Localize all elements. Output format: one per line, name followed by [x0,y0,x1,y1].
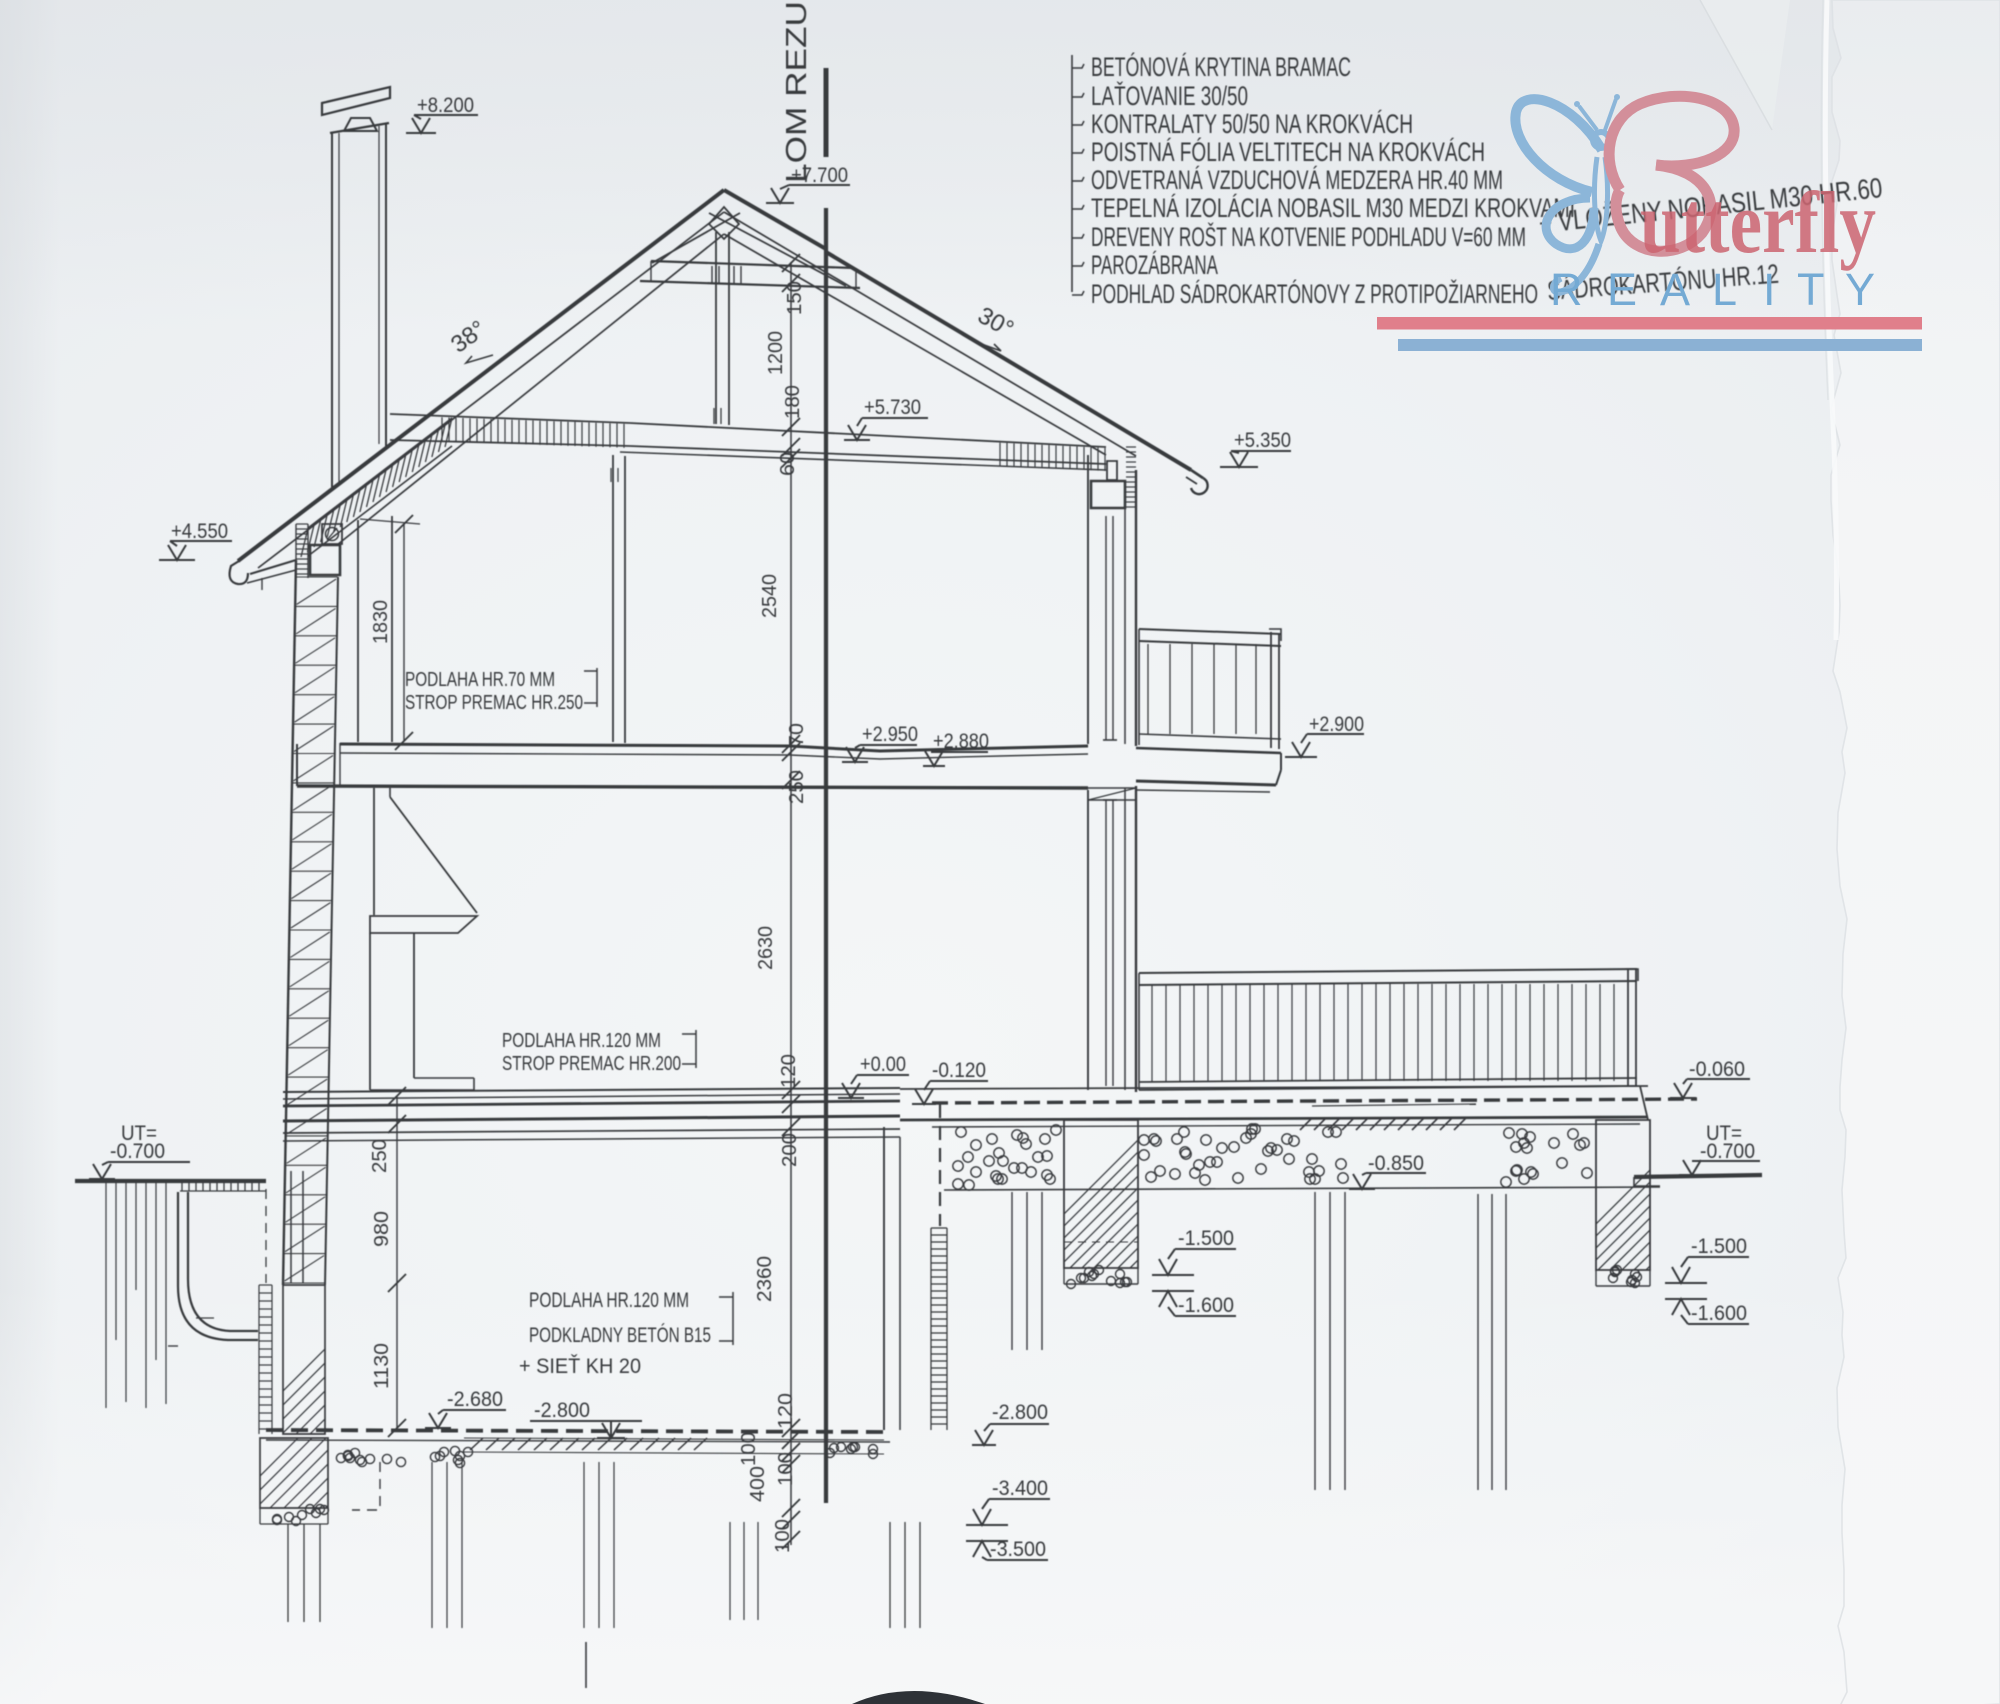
svg-text:980: 980 [371,1211,393,1247]
svg-text:-2.800: -2.800 [992,1401,1048,1424]
svg-text:-3.400: -3.400 [992,1477,1048,1500]
svg-text:2630: 2630 [755,926,777,970]
svg-text:1830: 1830 [370,600,392,644]
svg-text:utterfly: utterfly [1640,175,1876,272]
svg-text:E: E [1607,264,1637,315]
svg-text:+0.00: +0.00 [860,1053,906,1076]
svg-text:-0.700: -0.700 [1700,1140,1755,1163]
svg-text:TEPELNÁ IZOLÁCIA NOBASIL M30 M: TEPELNÁ IZOLÁCIA NOBASIL M30 MEDZI KROKV… [1091,193,1575,223]
svg-text:400: 400 [747,1466,769,1502]
svg-text:-2.680: -2.680 [447,1388,503,1411]
svg-text:250: 250 [786,770,808,804]
svg-text:60: 60 [777,452,799,476]
svg-text:R: R [1550,264,1583,315]
svg-text:DREVENY ROŠT NA KOTVENIE PODHL: DREVENY ROŠT NA KOTVENIE PODHLADU V=60 M… [1091,221,1526,252]
svg-text:BETÓNOVÁ KRYTINA BRAMAC: BETÓNOVÁ KRYTINA BRAMAC [1091,51,1351,82]
svg-text:-1.600: -1.600 [1691,1302,1747,1325]
svg-text:+2.950: +2.950 [862,723,918,746]
svg-text:-0.060: -0.060 [1689,1058,1745,1081]
svg-text:LAŤOVANIE 30/50: LAŤOVANIE 30/50 [1091,80,1248,111]
svg-text:ODVETRANÁ VZDUCHOVÁ MEDZERA HR: ODVETRANÁ VZDUCHOVÁ MEDZERA HR.40 MM [1091,165,1503,195]
svg-text:T: T [1797,264,1825,315]
svg-text:120: 120 [775,1393,797,1429]
svg-text:PODLAHA HR.70 MM: PODLAHA HR.70 MM [405,669,555,691]
svg-text:PODKLADNY BETÓN B15: PODKLADNY BETÓN B15 [529,1324,711,1347]
svg-text:+5.350: +5.350 [1234,429,1291,452]
svg-text:-2.800: -2.800 [534,1399,590,1422]
svg-text:PODHLAD SÁDROKARTÓNOVY Z PROTI: PODHLAD SÁDROKARTÓNOVY Z PROTIPOŽIARNEHO [1091,278,1538,309]
svg-text:PODLAHA HR.120 MM: PODLAHA HR.120 MM [529,1289,689,1312]
svg-text:+5.730: +5.730 [864,396,921,419]
svg-text:180: 180 [782,385,804,419]
svg-text:+2.900: +2.900 [1309,713,1364,736]
svg-text:L: L [1712,264,1737,315]
svg-text:-0.850: -0.850 [1368,1152,1424,1175]
svg-text:POISTNÁ FÓLIA VELTITECH NA KRO: POISTNÁ FÓLIA VELTITECH NA KROKVÁCH [1091,136,1485,167]
svg-text:A: A [1660,264,1690,315]
svg-text:KONTRALATY 50/50 NA KROKVÁCH: KONTRALATY 50/50 NA KROKVÁCH [1091,109,1413,139]
svg-text:-3.500: -3.500 [990,1538,1046,1561]
svg-text:STROP PREMAC HR.250: STROP PREMAC HR.250 [405,692,583,714]
svg-text:250: 250 [369,1139,391,1173]
svg-text:-1.500: -1.500 [1178,1227,1234,1250]
svg-text:2540: 2540 [759,574,781,618]
svg-text:STROP PREMAC HR.200: STROP PREMAC HR.200 [502,1053,681,1075]
svg-text:Y: Y [1845,264,1875,315]
svg-text:150: 150 [784,281,806,315]
svg-text:100: 100 [738,1432,760,1466]
svg-text:+2.880: +2.880 [933,730,989,753]
svg-text:PODLAHA HR.120 MM: PODLAHA HR.120 MM [502,1030,661,1052]
svg-text:70: 70 [786,723,808,747]
svg-text:LOM REZU: LOM REZU [781,1,813,183]
svg-text:-1.500: -1.500 [1691,1235,1747,1258]
svg-text:PAROZÁBRANA: PAROZÁBRANA [1091,250,1218,280]
svg-text:-0.700: -0.700 [110,1140,165,1163]
svg-text:2360: 2360 [754,1256,776,1302]
svg-text:+8.200: +8.200 [417,94,474,117]
svg-text:120: 120 [778,1054,800,1088]
svg-text:I: I [1763,264,1776,315]
svg-text:-0.120: -0.120 [932,1059,986,1082]
svg-text:-1.600: -1.600 [1178,1294,1234,1317]
svg-text:100: 100 [772,1519,794,1553]
svg-text:+4.550: +4.550 [171,520,228,543]
svg-text:+ SIEŤ KH 20: + SIEŤ KH 20 [519,1355,641,1378]
svg-text:200: 200 [779,1133,801,1167]
svg-text:1130: 1130 [371,1343,393,1389]
svg-text:1200: 1200 [765,331,787,375]
svg-text:+7.700: +7.700 [791,164,848,187]
svg-text:100: 100 [775,1452,797,1486]
